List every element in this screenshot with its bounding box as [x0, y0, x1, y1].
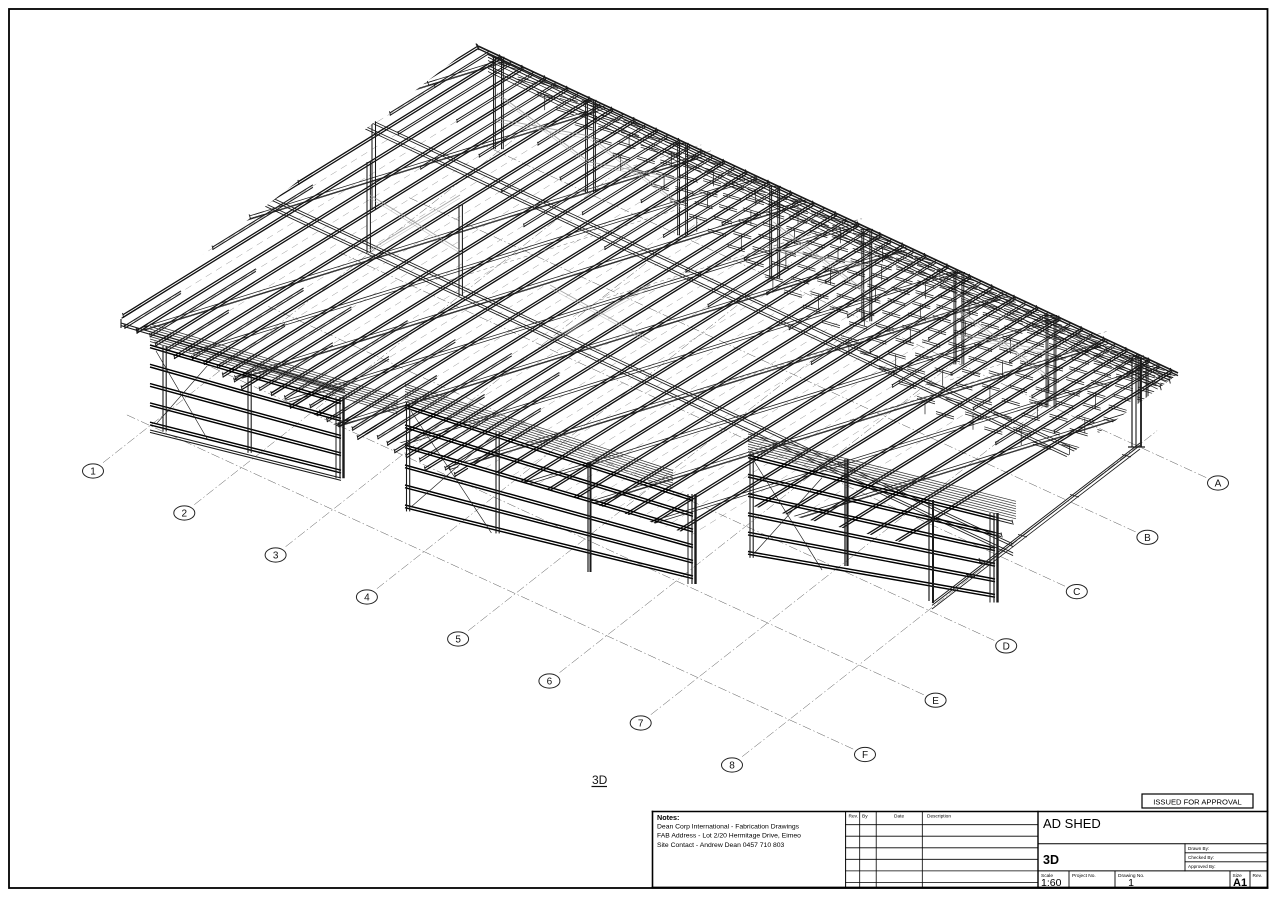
svg-text:3D: 3D — [1043, 853, 1059, 867]
svg-text:Checked By:: Checked By: — [1188, 855, 1214, 860]
svg-text:6: 6 — [547, 677, 553, 688]
svg-text:Drawn By:: Drawn By: — [1188, 846, 1209, 851]
svg-text:Site Contact - Andrew Dean 045: Site Contact - Andrew Dean 0457 710 803 — [657, 842, 785, 849]
svg-text:Dean Corp International - Fabr: Dean Corp International - Fabrication Dr… — [657, 824, 800, 831]
svg-text:Rev.: Rev. — [849, 814, 859, 820]
svg-text:ISSUED FOR APPROVAL: ISSUED FOR APPROVAL — [1153, 798, 1241, 807]
svg-text:A: A — [1215, 479, 1222, 490]
svg-text:F: F — [862, 750, 868, 761]
svg-text:Description: Description — [927, 814, 951, 820]
svg-text:7: 7 — [638, 719, 644, 730]
svg-text:Notes:: Notes: — [657, 813, 679, 822]
svg-text:3D: 3D — [592, 773, 608, 787]
svg-text:Date: Date — [894, 814, 904, 820]
svg-text:A1: A1 — [1233, 877, 1247, 889]
svg-text:E: E — [932, 696, 939, 707]
svg-text:3: 3 — [273, 551, 279, 562]
svg-text:Project No.: Project No. — [1072, 873, 1096, 879]
svg-text:By: By — [862, 814, 868, 820]
svg-text:B: B — [1144, 533, 1151, 544]
svg-text:D: D — [1003, 642, 1010, 653]
svg-text:5: 5 — [455, 635, 461, 646]
svg-text:8: 8 — [729, 761, 735, 772]
svg-text:2: 2 — [182, 509, 188, 520]
svg-text:AD SHED: AD SHED — [1043, 816, 1101, 831]
svg-text:FAB Address - Lot 2/20 Hermita: FAB Address - Lot 2/20 Hermitage Drive, … — [657, 833, 801, 840]
svg-text:1:60: 1:60 — [1041, 877, 1062, 889]
svg-text:1: 1 — [1128, 877, 1134, 889]
svg-text:4: 4 — [364, 593, 370, 604]
svg-text:Rev.: Rev. — [1253, 873, 1263, 879]
svg-text:Approved By:: Approved By: — [1188, 864, 1216, 869]
svg-text:1: 1 — [90, 467, 96, 478]
svg-text:C: C — [1073, 587, 1080, 598]
